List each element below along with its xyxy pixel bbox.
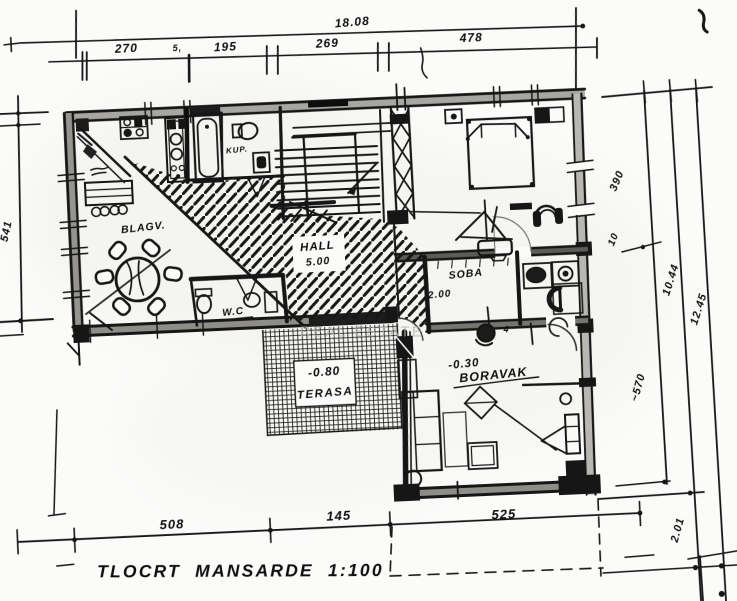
svg-text:REAL ESTATE: REAL ESTATE xyxy=(300,325,424,341)
svg-text:195: 195 xyxy=(214,39,238,54)
svg-text:TLOCRT MANSARDE 1:100: TLOCRT MANSARDE 1:100 xyxy=(97,560,384,582)
svg-text:5.00: 5.00 xyxy=(305,255,330,269)
svg-text:-0.80: -0.80 xyxy=(307,363,340,380)
svg-text:525: 525 xyxy=(491,506,516,522)
svg-text:478: 478 xyxy=(458,30,483,45)
svg-text:18.08: 18.08 xyxy=(334,14,370,31)
svg-text:4: 4 xyxy=(502,324,509,334)
svg-text:145: 145 xyxy=(326,508,351,524)
svg-text:5,: 5, xyxy=(172,43,182,53)
svg-text:269: 269 xyxy=(314,36,339,51)
svg-text:508: 508 xyxy=(159,516,184,532)
svg-text:270: 270 xyxy=(114,41,139,56)
